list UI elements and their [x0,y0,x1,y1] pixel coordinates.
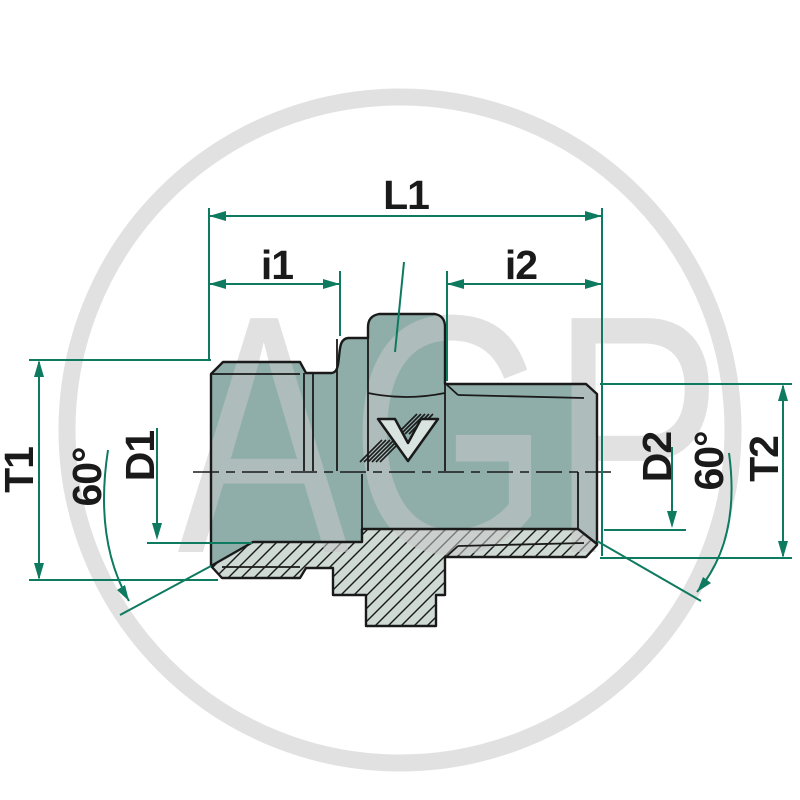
technical-drawing: AGP [0,0,800,800]
dim-label-d2: D2 [634,432,680,483]
dim-label-i1: i1 [261,242,293,288]
dim-label-angle-right: 60° [686,431,732,490]
dim-label-l1: L1 [383,172,429,218]
dim-label-t1: T1 [0,447,42,493]
dim-label-t2: T2 [741,436,787,482]
drawing-svg: AGP [0,0,800,800]
dim-label-i2: i2 [505,242,537,288]
dim-label-angle-left: 60° [64,447,110,506]
dim-label-d1: D1 [117,431,163,482]
